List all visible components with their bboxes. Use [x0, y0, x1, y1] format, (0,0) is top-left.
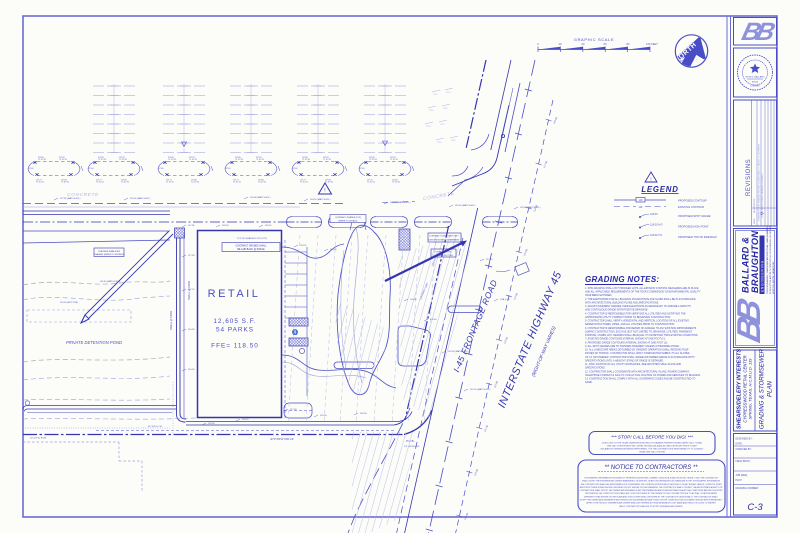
svg-text:DESIGNED BY:: DESIGNED BY:	[736, 438, 753, 441]
svg-text:AND ALL APPLICABLE REQUIREMENT: AND ALL APPLICABLE REQUIREMENTS OF THE T…	[584, 291, 701, 294]
svg-text:TC 117.30: TC 117.30	[258, 182, 266, 184]
svg-text:CONTRACT GRADES (TOP): CONTRACT GRADES (TOP)	[335, 216, 361, 219]
svg-text:118.36 (MATCH EX.): 118.36 (MATCH EX.)	[520, 206, 541, 209]
svg-text:TC 117.35: TC 117.35	[168, 159, 176, 161]
svg-text:66045: 66045	[752, 82, 759, 84]
svg-text:PO BOX 671129, AUSTIN, TX 787: PO BOX 671129, AUSTIN, TX 78767-0115 Tel…	[769, 226, 772, 294]
svg-text:6. CONTRACTOR IS RESPONSIBL: 6. CONTRACTOR IS RESPONSIBLE FOR REPAIR …	[585, 327, 697, 330]
svg-text:118.26: 118.26	[330, 249, 337, 251]
svg-text:CHANNEL (REFER TO DETAILS): CHANNEL (REFER TO DETAILS)	[94, 253, 124, 256]
svg-text:EXCAVATION OPERATIONS BEING PE: EXCAVATION OPERATIONS BEING PERFORMED. I…	[601, 448, 705, 451]
svg-text:1. SITE GRADING SHALL NOT PR: 1. SITE GRADING SHALL NOT PROCEED UNTIL …	[585, 287, 699, 290]
svg-text:118.00: 118.00	[320, 415, 327, 417]
svg-text:TC 117.30: TC 117.30	[191, 182, 199, 184]
svg-text:117.4: 117.4	[446, 92, 450, 94]
svg-text:TC 117.42: TC 117.42	[59, 159, 67, 161]
svg-text:STA 4+20: STA 4+20	[500, 298, 510, 301]
svg-text:BT OFF R.O.W.: BT OFF R.O.W.	[148, 426, 163, 428]
svg-text:117.4: 117.4	[426, 126, 430, 128]
svg-text:*** STOP! CALL BEFORE YOU: *** STOP! CALL BEFORE YOU DIG! ***	[611, 435, 693, 440]
svg-text:PROPOSED HIGH POINT: PROPOSED HIGH POINT	[678, 225, 709, 229]
svg-text:115.90 (MATCH EX.): 115.90 (MATCH EX.)	[448, 350, 469, 353]
svg-text:117.4: 117.4	[433, 94, 437, 96]
svg-text:TC 117.35: TC 117.35	[235, 159, 243, 161]
svg-text:AND CONTINUOUS GRADE WITH POSI: AND CONTINUOUS GRADE WITH POSITIVE DRAIN…	[584, 309, 649, 312]
svg-text:REFER TO DETAILS: REFER TO DETAILS	[339, 219, 358, 222]
svg-text:9. ALL SPOT GRADES ARE TO F: 9. ALL SPOT GRADES ARE TO FINISHED PAVEM…	[585, 345, 680, 348]
svg-text:TC 117.42: TC 117.42	[256, 159, 264, 161]
svg-text:30’ LDF A. ROW: 30’ LDF A. ROW	[30, 437, 47, 440]
svg-text:TC 117.30: TC 117.30	[61, 182, 69, 184]
svg-text:DISTURB EXISTING PAVEMENT: DISTURB EXISTING PAVEMENT	[428, 238, 460, 241]
svg-text:117.60: 117.60	[359, 168, 364, 170]
svg-text:117.60: 117.60	[158, 168, 163, 170]
svg-text:TC 117.30: TC 117.30	[392, 182, 400, 184]
svg-text:APPROPRIATE UTILITY COMPANY PR: APPROPRIATE UTILITY COMPANY PRIOR TO BEG…	[584, 316, 671, 319]
svg-text:TC 117.35: TC 117.35	[302, 159, 310, 161]
svg-text:12,605 S.F.: 12,605 S.F.	[213, 318, 256, 325]
svg-text:DATE: DATE	[753, 218, 756, 224]
svg-text:117.60: 117.60	[225, 168, 230, 170]
svg-text:STRIPING, CURBS, ETC. REPAIRS: STRIPING, CURBS, ETC. REPAIRS SHALL BE E…	[585, 334, 698, 337]
svg-text:TC 117.21: TC 117.21	[300, 182, 308, 184]
svg-text:PROPOSED CONTOUR: PROPOSED CONTOUR	[678, 199, 707, 203]
svg-text:116.40: 116.40	[188, 369, 195, 371]
svg-text:118.10: 118.10	[242, 419, 249, 421]
svg-text:3. ADJUST PAVEMENT GRADES O: 3. ADJUST PAVEMENT GRADES OVER ELEVATION…	[585, 305, 691, 308]
svg-text:GRADING & STORMSEWER: GRADING & STORMSEWER	[759, 348, 766, 429]
svg-text:TC 117.42: TC 117.42	[189, 159, 197, 161]
svg-text:IN ACCORD TO THE TEXAS UNDERGR: IN ACCORD TO THE TEXAS UNDERGROUND FACIL…	[602, 442, 702, 445]
svg-text:OVERSIZE SWALE/RIP: OVERSIZE SWALE/RIP	[98, 250, 121, 253]
svg-text:118.24 (MATCH EX.): 118.24 (MATCH EX.)	[390, 201, 411, 204]
svg-text:NOTIFY THE OWNER AND ENGINEER: NOTIFY THE OWNER AND ENGINEER IF ANY ERR…	[580, 499, 723, 502]
svg-text:PROPOSED SPOT GRADE: PROPOSED SPOT GRADE	[678, 214, 711, 218]
svg-text:C-3: C-3	[747, 502, 763, 513]
svg-text:JOB (REF):: JOB (REF):	[736, 474, 749, 477]
svg-text:117.60: 117.60	[88, 168, 93, 170]
svg-text:118.02: 118.02	[222, 225, 229, 227]
svg-text:ONE CALL SYSTEM MUST BE CONTAC: ONE CALL SYSTEM MUST BE CONTACTED (800-2…	[607, 445, 698, 448]
svg-text:FFE= 118.50: FFE= 118.50	[211, 343, 259, 350]
svg-text:PROCEEDS IN THE CONSTRUCTION P: PROCEEDS IN THE CONSTRUCTION PLANS. ANY …	[585, 492, 718, 495]
svg-text:116.90: 116.90	[410, 299, 417, 301]
svg-text:CONTRACT GRADES SHALL: CONTRACT GRADES SHALL	[236, 244, 268, 247]
svg-text:DIFFERENT THAN SHOWN ON THE PL: DIFFERENT THAN SHOWN ON THE PLANS AND ST…	[584, 495, 718, 498]
svg-text:116.80: 116.80	[188, 329, 195, 331]
svg-text:118: 118	[639, 199, 643, 202]
svg-text:TC 117.42: TC 117.42	[390, 159, 398, 161]
svg-text:!: !	[650, 177, 651, 182]
svg-text:117.90: 117.90	[290, 409, 297, 411]
svg-text:LOWERED SITE BY GRADING; REVIS: LOWERED SITE BY GRADING; REVISED VOLUMES…	[758, 143, 761, 221]
svg-text:** NOTICE TO CONTRACTORS: ** NOTICE TO CONTRACTORS **	[604, 465, 698, 471]
svg-text:116.60: 116.60	[430, 319, 437, 321]
svg-text:SPECIFICATIONS.: SPECIFICATIONS.	[585, 367, 606, 370]
svg-text:EXISTING CONTOUR: EXISTING CONTOUR	[678, 205, 704, 209]
svg-text:8. PROPOSED GRADE CONTOURS: 8. PROPOSED GRADE CONTOURS INTERVAL SHOW…	[585, 341, 668, 344]
svg-text:4. CONTRACTOR IS RESPONSIBL: 4. CONTRACTOR IS RESPONSIBLE FOR VERIFYI…	[585, 312, 686, 315]
svg-text:5. CONTRACTOR SHALL VERIFY: 5. CONTRACTOR SHALL VERIFY HORIZONTAL AN…	[585, 320, 689, 323]
svg-text:DESCRIPTION: DESCRIPTION	[754, 198, 756, 213]
svg-text:117.60: 117.60	[188, 255, 195, 257]
svg-text:117.10: 117.10	[486, 259, 493, 261]
svg-text:115.20 (MATCH EX.): 115.20 (MATCH EX.)	[470, 388, 491, 391]
svg-text:118.06: 118.06	[208, 423, 215, 425]
svg-text:TC 117.35: TC 117.35	[98, 159, 106, 161]
svg-text:PROPOSED TOP OF SIDEWALK: PROPOSED TOP OF SIDEWALK	[678, 235, 717, 239]
svg-text:54 PARKS: 54 PARKS	[216, 327, 254, 334]
svg-text:SWALE @ 0.60%: SWALE @ 0.60%	[170, 310, 173, 330]
svg-text:INCHES OF TOPSOIL. CONTRACTOR: INCHES OF TOPSOIL. CONTRACTOR SHALL APPL…	[585, 352, 690, 355]
svg-text:TC 117.42: TC 117.42	[119, 159, 127, 161]
svg-text:TELEPHONE COMPANY & GAS CO. FO: TELEPHONE COMPANY & GAS CO. FOR ACTUAL R…	[585, 374, 701, 377]
svg-text:LICENSED: LICENSED	[750, 86, 760, 88]
svg-text:PRIVATE DETENTION POND: PRIVATE DETENTION POND	[66, 340, 122, 345]
svg-text:TC 117.21: TC 117.21	[367, 182, 375, 184]
svg-text:♿: ♿	[293, 330, 298, 335]
svg-text:TC 117.35: TC 117.35	[38, 159, 46, 161]
svg-text:118.30 (MATCH EX.): 118.30 (MATCH EX.)	[455, 204, 476, 207]
svg-text:CURB AND GUTTER: CURB AND GUTTER	[433, 254, 453, 257]
svg-text:!: !	[324, 188, 325, 194]
svg-text:117.4: 117.4	[451, 140, 455, 142]
svg-text:118.16 (MATCH EX.): 118.16 (MATCH EX.)	[310, 198, 331, 201]
svg-text:118.00 (MATCH EX.): 118.00 (MATCH EX.)	[130, 197, 151, 200]
svg-text:LEGEND: LEGEND	[641, 185, 678, 194]
svg-text:WITH ARCHITECTURAL BUILDING PL: WITH ARCHITECTURAL BUILDING PLANS AND SP…	[585, 302, 659, 305]
svg-text:117.4: 117.4	[437, 142, 441, 144]
svg-text:HOUSTON - AUSTIN - SAN ANTONIO: HOUSTON - AUSTIN - SAN ANTONIO	[772, 261, 775, 294]
svg-text:118.20: 118.20	[300, 245, 307, 247]
svg-text:118.00 H.P.: 118.00 H.P.	[650, 224, 663, 227]
svg-text:SHALL NOTIFY THE ENGINEER AND: SHALL NOTIFY THE ENGINEER AND OWNER IMME…	[582, 480, 721, 483]
svg-text:11. FOR LOCATION OF ALL UTIL: 11. FOR LOCATION OF ALL UTILITY ENTRANCE…	[585, 363, 681, 366]
svg-text:OF 3:1 OR STEEPER. CONTRACTOR: OF 3:1 OR STEEPER. CONTRACTOR SHALL GRAD…	[585, 356, 695, 359]
svg-text:GRADING NOTES:: GRADING NOTES:	[585, 275, 659, 284]
svg-text:TC 117.21: TC 117.21	[233, 182, 241, 184]
svg-text:S73°03'W 582.19': S73°03'W 582.19'	[270, 437, 294, 441]
svg-text:114.50 (BOTTOM): 114.50 (BOTTOM)	[60, 302, 78, 304]
svg-text:117.4: 117.4	[440, 124, 444, 126]
svg-text:AND STRUCTURES EITHER SHOWN, I: AND STRUCTURES EITHER SHOWN, INDICATED O…	[579, 486, 723, 489]
svg-text:FAULT. CONTRACTOR'S FAILURE T: FAULT. CONTRACTOR'S FAILURE TO NOTIFY EN…	[619, 505, 683, 508]
svg-text:116.00 (MATCH EX.): 116.00 (MATCH EX.)	[100, 280, 121, 283]
svg-text:117.60: 117.60	[292, 168, 297, 170]
svg-text:10. ALL LANDSCAPE AREAS DIST: 10. ALL LANDSCAPE AREAS DISTURBED BY GRA…	[585, 349, 689, 352]
svg-text:118.05: 118.05	[360, 413, 367, 415]
svg-text:118.10: 118.10	[265, 225, 272, 227]
svg-text:BE LAID BACK @ SWALE: BE LAID BACK @ SWALE	[237, 248, 265, 251]
svg-text:SPRING, TEXAS, H.C.M.U.D. 119: SPRING, TEXAS, H.C.M.U.D. 119	[748, 358, 753, 420]
svg-text:RETAIL: RETAIL	[208, 288, 261, 300]
svg-text:BION N. BALLARD: BION N. BALLARD	[746, 76, 765, 79]
svg-text:HAVE BEEN SATISFIED.: HAVE BEEN SATISFIED.	[585, 294, 612, 297]
svg-text:TOP OF GRADE/113.28 (TYP.): TOP OF GRADE/113.28 (TYP.)	[237, 237, 267, 240]
svg-text:BRAUGHTON: BRAUGHTON	[750, 231, 760, 293]
svg-text:117.95: 117.95	[188, 225, 195, 227]
svg-text:7. EXISTING GRADE CONTOURS: 7. EXISTING GRADE CONTOURS INTERVAL SHOW…	[585, 338, 666, 341]
svg-text:117.60: 117.60	[28, 168, 33, 170]
svg-text:TC 117.21: TC 117.21	[166, 182, 174, 184]
svg-text:DATE:: DATE:	[736, 443, 743, 446]
svg-text:TOPOGRAPHIC INFORMATION PROVID: TOPOGRAPHIC INFORMATION PROVIDED BY THOM…	[584, 477, 719, 480]
svg-text:E N G I N E E R I N G: E N G I N E E R I N G	[761, 260, 765, 292]
svg-text:FIELD BOOK:: FIELD BOOK:	[736, 460, 751, 463]
svg-text:TC 117.30: TC 117.30	[325, 182, 333, 184]
svg-text:REVISIONS: REVISIONS	[746, 159, 752, 196]
svg-text:PLAN: PLAN	[767, 380, 774, 397]
svg-text:DRAWING NUMBER:: DRAWING NUMBER:	[736, 487, 759, 490]
svg-text:117.4: 117.4	[429, 110, 433, 112]
svg-text:PLOT:: PLOT:	[736, 479, 743, 482]
svg-text:TC 117.21: TC 117.21	[96, 182, 104, 184]
svg-text:CONTRACT LIMIT LINE DON'T: CONTRACT LIMIT LINE DON'T	[429, 235, 459, 238]
svg-text:TC 117.30: TC 117.30	[121, 182, 129, 184]
svg-text:THE CONTRACTORS SHALL BE RESPO: THE CONTRACTORS SHALL BE RESPONSIBLE FOR…	[580, 483, 722, 486]
svg-text:TC 117.42: TC 117.42	[323, 159, 331, 161]
svg-text:DURING CONSTRUCTION, SUCH AS,: DURING CONSTRUCTION, SUCH AS, BUT NOT LI…	[585, 330, 693, 333]
svg-text:117.20: 117.20	[188, 289, 195, 291]
svg-text:CHECKED BY:: CHECKED BY:	[736, 448, 752, 451]
svg-text:SAME.: SAME.	[585, 381, 593, 384]
svg-text:1/2” IRON ROD: 1/2” IRON ROD	[404, 446, 420, 448]
svg-text:117.95 (MATCH EX.): 117.95 (MATCH EX.)	[60, 197, 81, 200]
svg-text:117.4: 117.4	[443, 108, 447, 110]
svg-text:CONNECT TO EX.: CONNECT TO EX.	[434, 252, 452, 254]
svg-text:AFFECT THE PROJECT. ENGINEER: AFFECT THE PROJECT. ENGINEER AND OWNER S…	[585, 502, 716, 505]
svg-text:TC 117.35: TC 117.35	[369, 159, 377, 161]
svg-text:SEWER STRUCTURES, PIPES, AND A: SEWER STRUCTURES, PIPES, AND ALL UTILITI…	[585, 323, 675, 326]
svg-text:100 FEET: 100 FEET	[646, 42, 658, 46]
svg-text:TEXAS ONE CALL SYSTEM.: TEXAS ONE CALL SYSTEM.	[639, 451, 666, 454]
svg-text:CITY OF HOUSTON FIRST GENERAL: CITY OF HOUSTON FIRST GENERAL COMMENTS	[761, 173, 764, 218]
svg-text:BALLARD &: BALLARD &	[741, 237, 751, 293]
svg-text:118.00: 118.00	[650, 213, 658, 216]
svg-text:118.00 T.S.: 118.00 T.S.	[650, 234, 663, 237]
svg-text:TC 117.21: TC 117.21	[36, 182, 44, 184]
svg-text:13. CONSTRUCTION SHALL COMPL: 13. CONSTRUCTION SHALL COMPLY WITH ALL G…	[585, 378, 695, 381]
svg-text:CIVIL ENGINEERING - LANDSCAPE: CIVIL ENGINEERING - LANDSCAPE ARCHITECTU…	[766, 226, 769, 294]
svg-text:GRAPHIC SCALE: GRAPHIC SCALE	[574, 37, 614, 42]
svg-text:12. CONTRACTOR SHALL COORDIN: 12. CONTRACTOR SHALL COORDINATE WITH ARC…	[585, 370, 690, 373]
svg-text:CONTRACTORS SHALL NOTIFY THE O: CONTRACTORS SHALL NOTIFY THE OWNER AND E…	[580, 489, 723, 492]
svg-text:SPECIFICATIONS UNTIL A HEALTHY: SPECIFICATIONS UNTIL A HEALTHY STAND OF …	[585, 359, 664, 362]
svg-text:118.08 (MATCH EX.): 118.08 (MATCH EX.)	[250, 196, 271, 199]
svg-text:2. THE EARTHWORK FOR ALL BU: 2. THE EARTHWORK FOR ALL BUILDING FOUNDA…	[584, 298, 696, 301]
